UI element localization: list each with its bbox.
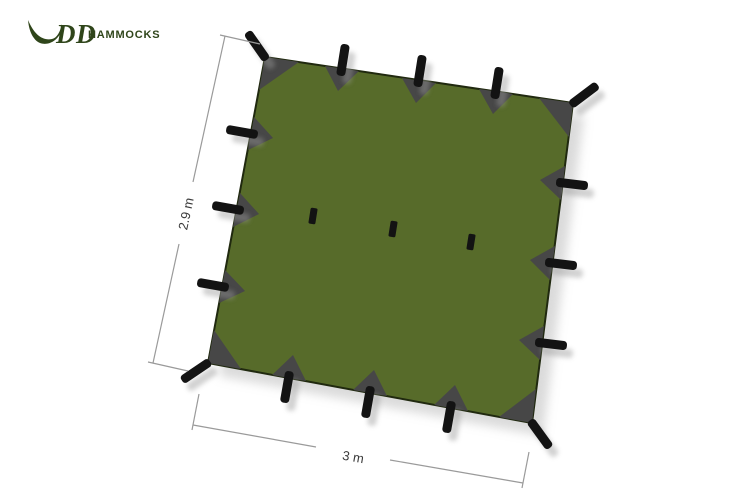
dd-hammocks-logo: DD HAMMOCKS bbox=[28, 19, 160, 49]
product-diagram-canvas: 2.9 m 3 m DD HAMMOCKS bbox=[0, 0, 750, 500]
tarp-top-view-diagram: 2.9 m 3 m DD HAMMOCKS bbox=[0, 0, 750, 500]
dimension-end-tick bbox=[192, 394, 199, 430]
tarp-fabric bbox=[208, 57, 573, 423]
logo-hammocks-text: HAMMOCKS bbox=[88, 29, 160, 41]
width-dimension-label: 3 m bbox=[341, 448, 365, 467]
dimension-end-tick bbox=[148, 362, 188, 371]
dimension-end-tick bbox=[522, 452, 529, 488]
height-dimension-label: 2.9 m bbox=[175, 196, 196, 231]
